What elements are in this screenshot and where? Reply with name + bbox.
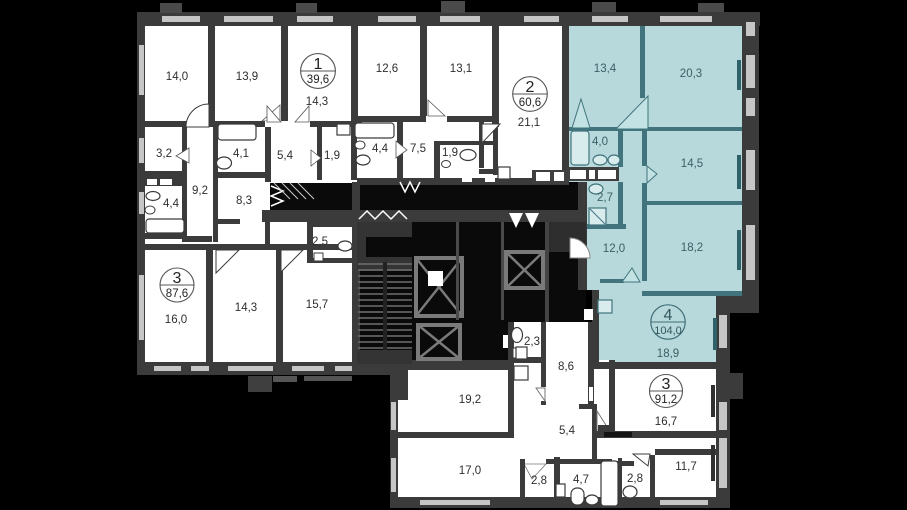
svg-text:7,5: 7,5 [410, 143, 426, 155]
svg-text:13,1: 13,1 [450, 63, 472, 75]
svg-text:11,7: 11,7 [675, 461, 697, 473]
svg-text:20,3: 20,3 [680, 68, 702, 80]
svg-text:60,6: 60,6 [519, 97, 541, 109]
svg-text:4,1: 4,1 [233, 148, 249, 160]
svg-text:5,4: 5,4 [559, 425, 576, 437]
svg-text:39,6: 39,6 [307, 74, 329, 86]
svg-text:4,0: 4,0 [592, 136, 608, 148]
svg-text:12,6: 12,6 [376, 63, 398, 75]
svg-text:1,9: 1,9 [442, 147, 458, 159]
svg-text:21,1: 21,1 [518, 117, 540, 129]
svg-text:91,2: 91,2 [655, 394, 677, 406]
svg-text:13,4: 13,4 [594, 63, 617, 75]
svg-text:19,2: 19,2 [459, 394, 481, 406]
svg-text:3,2: 3,2 [156, 148, 172, 160]
svg-text:14,0: 14,0 [166, 71, 188, 83]
svg-text:2,3: 2,3 [524, 336, 540, 348]
svg-text:16,7: 16,7 [655, 416, 677, 428]
svg-text:3: 3 [662, 376, 671, 393]
svg-text:4,7: 4,7 [573, 474, 589, 486]
svg-text:4: 4 [664, 307, 673, 324]
svg-text:14,5: 14,5 [681, 158, 703, 170]
svg-text:12,0: 12,0 [603, 243, 625, 255]
svg-text:2,8: 2,8 [627, 473, 643, 485]
svg-text:13,9: 13,9 [236, 71, 258, 83]
svg-text:2,8: 2,8 [531, 475, 547, 487]
svg-text:3: 3 [173, 270, 182, 287]
svg-text:14,3: 14,3 [306, 96, 328, 108]
svg-text:104,0: 104,0 [654, 325, 682, 337]
svg-text:2: 2 [526, 79, 535, 96]
svg-text:16,0: 16,0 [165, 314, 187, 326]
svg-text:4,4: 4,4 [163, 198, 180, 210]
svg-text:18,2: 18,2 [681, 242, 703, 254]
svg-text:15,7: 15,7 [306, 299, 328, 311]
svg-text:87,6: 87,6 [166, 288, 188, 300]
svg-text:14,3: 14,3 [235, 302, 257, 314]
svg-text:8,3: 8,3 [236, 195, 252, 207]
svg-text:5,4: 5,4 [277, 150, 294, 162]
svg-text:9,2: 9,2 [192, 185, 208, 197]
svg-text:1: 1 [314, 56, 323, 73]
svg-text:2,7: 2,7 [597, 192, 613, 204]
svg-text:8,6: 8,6 [558, 361, 574, 373]
svg-text:17,0: 17,0 [459, 465, 481, 477]
svg-text:1,9: 1,9 [324, 150, 340, 162]
svg-text:4,4: 4,4 [372, 143, 389, 155]
svg-text:18,9: 18,9 [657, 348, 679, 360]
svg-text:2,5: 2,5 [312, 236, 328, 248]
